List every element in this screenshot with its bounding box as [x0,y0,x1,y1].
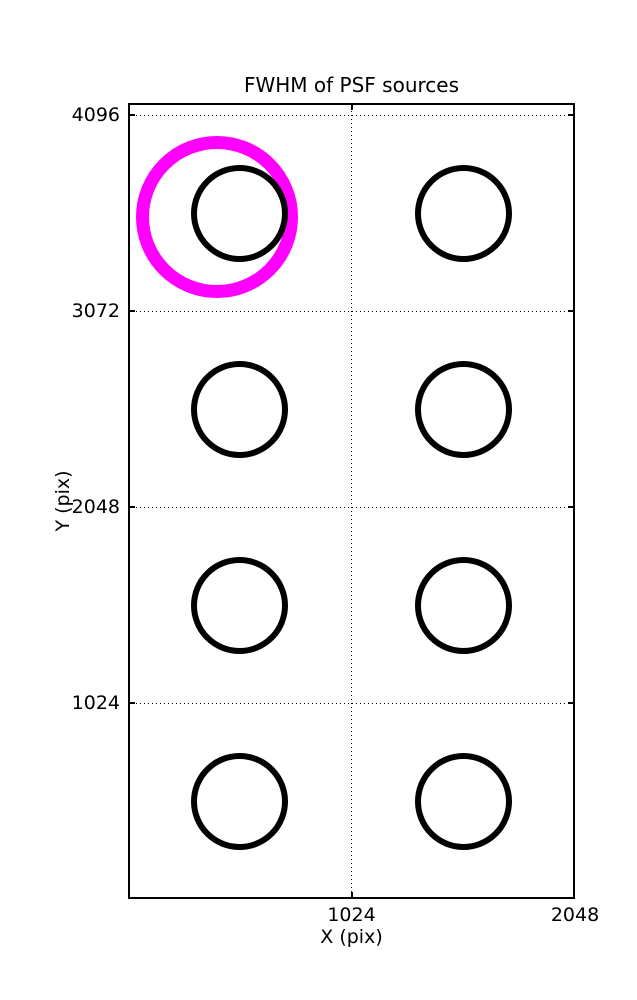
y-tick-label-4096: 4096 [52,105,120,126]
psf-sources-marker [191,753,288,850]
psf-sources-marker [191,557,288,654]
y-tick-left-4096 [128,114,135,116]
y-tick-left-2048 [128,506,135,508]
y-tick-left-3072 [128,310,135,312]
y-tick-label-1024: 1024 [52,693,120,714]
y-tick-left-1024 [128,702,135,704]
y-tick-label-3072: 3072 [52,301,120,322]
psf-sources-marker [415,753,512,850]
x-tick-label-2048: 2048 [535,905,615,926]
psf-sources-marker [415,557,512,654]
psf-sources-marker [191,165,288,262]
chart-title: FWHM of PSF sources [128,73,575,97]
psf-sources-marker [191,361,288,458]
figure: FWHM of PSF sources X (pix) Y (pix) 1024… [0,0,637,1000]
x-tick-top-1024 [351,103,353,110]
y-tick-label-2048: 2048 [52,497,120,518]
y-tick-right-2048 [568,506,575,508]
x-axis-label: X (pix) [128,926,575,948]
x-tick-label-1024: 1024 [312,905,392,926]
y-tick-right-1024 [568,702,575,704]
y-tick-right-3072 [568,310,575,312]
y-tick-right-4096 [568,114,575,116]
psf-sources-marker [415,361,512,458]
x-tick-bottom-1024 [351,892,353,899]
gridline-x-1024 [351,103,352,899]
plot-area [128,103,575,899]
psf-sources-marker [415,165,512,262]
